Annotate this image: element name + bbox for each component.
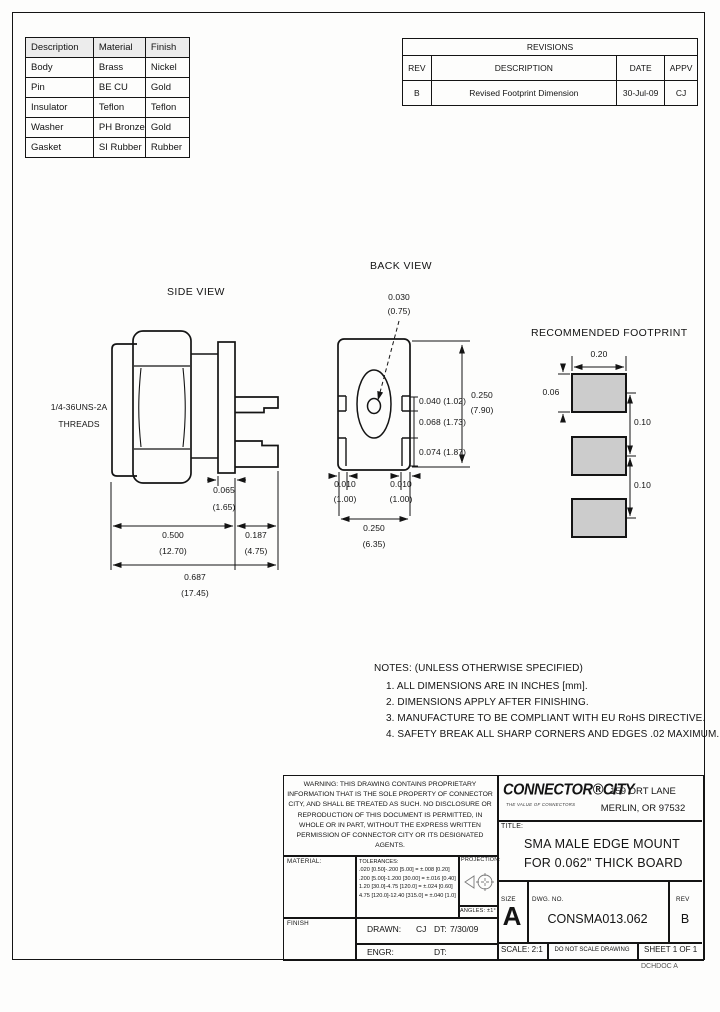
projection-label: PROJECTION: [461, 857, 500, 863]
title-block-line [458, 905, 497, 907]
footprint-label: RECOMMENDED FOOTPRINT [531, 327, 688, 339]
dim-pin-dia-mm: (0.75) [381, 306, 417, 316]
drawn-by-value: CJ [416, 924, 426, 934]
dim-back-width-mm: (6.35) [354, 539, 394, 549]
title-block-line [527, 880, 529, 942]
title-block-line [497, 820, 702, 822]
threads-note-line1: 1/4-36UNS-2A [46, 402, 112, 412]
tolerances-label: TOLERANCES: [359, 858, 456, 866]
dwg-no-value: CONSMA013.062 [527, 912, 668, 926]
company-tagline: THE VALUE OF CONNECTORS [506, 802, 575, 807]
title-block-line [668, 880, 670, 942]
company-address-line1: 159 ORT LANE [589, 783, 697, 800]
notes-heading: NOTES: (UNLESS OTHERWISE SPECIFIED) [374, 663, 583, 674]
proprietary-warning: WARNING: THIS DRAWING CONTAINS PROPRIETA… [287, 780, 493, 851]
dim-pad-height: 0.06 [538, 387, 564, 397]
drawn-date-label: DT: [434, 924, 447, 934]
engr-label: ENGR: [367, 947, 394, 957]
dim-flange-thickness-mm: (1.65) [200, 502, 248, 512]
company-address: 159 ORT LANE MERLIN, OR 97532 [589, 783, 697, 817]
dim-pin-dia-in: 0.030 [381, 292, 417, 302]
title-block-line [283, 917, 497, 919]
note-item-1: 1. ALL DIMENSIONS ARE IN INCHES [mm]. [386, 681, 588, 692]
dwg-no-label: DWG. NO. [532, 896, 564, 903]
dim-body-length-mm: (12.70) [148, 546, 198, 556]
dim-back-bottom: 0.074 (1.87) [419, 447, 466, 457]
corner-doc-code: DCHDOC A [641, 963, 678, 970]
engr-date-label: DT: [434, 947, 447, 957]
drawing-title-line1: SMA MALE EDGE MOUNT [524, 837, 680, 851]
dim-pad-pitch-bottom: 0.10 [634, 480, 651, 490]
footprint-drawing [572, 374, 626, 537]
dim-flange-thickness-in: 0.065 [200, 485, 248, 495]
drawn-label: DRAWN: [367, 924, 401, 934]
dim-overall-length-in: 0.687 [170, 572, 220, 582]
note-item-3: 3. MANUFACTURE TO BE COMPLIANT WITH EU R… [386, 713, 705, 724]
title-block-line [497, 942, 702, 944]
side-view-drawing [112, 331, 278, 483]
do-not-scale-text: DO NOT SCALE DRAWING [547, 947, 637, 953]
material-label: MATERIAL: [287, 858, 322, 865]
tolerances-block: TOLERANCES: .020 [0.50]-.200 [5.00] = ±.… [359, 858, 456, 900]
title-block-line [355, 943, 497, 945]
tolerance-line: .020 [0.50]-.200 [5.00] = ±.008 [0.20] [359, 866, 456, 874]
dim-leg-length-mm: (4.75) [231, 546, 281, 556]
dim-tab-right-in: 0.010 [384, 479, 418, 489]
dim-back-width-in: 0.250 [354, 523, 394, 533]
dim-back-height-mm: (7.90) [464, 405, 500, 415]
sheet-text: SHEET 1 OF 1 [644, 945, 697, 954]
dim-tab-left-in: 0.010 [328, 479, 362, 489]
angles-tolerance: ANGLES: ±1° [460, 908, 496, 914]
dim-leg-length-in: 0.187 [231, 530, 281, 540]
dim-overall-length-mm: (17.45) [170, 588, 220, 598]
back-view-drawing [338, 339, 410, 470]
third-angle-projection-icon [462, 868, 496, 896]
tolerance-line: .200 [5.00]-1.200 [30.00] = ±.016 [0.40] [359, 875, 456, 883]
dim-tab-left-mm: (1.00) [328, 494, 362, 504]
rev-value: B [668, 912, 702, 926]
tolerance-line: 1.20 [30.0]-4.75 [120.0] = ±.024 [0.60] [359, 883, 456, 891]
title-block-line [637, 942, 639, 959]
dim-pad-pitch-top: 0.10 [634, 417, 651, 427]
dim-back-height-in: 0.250 [464, 390, 500, 400]
size-value: A [497, 901, 527, 932]
threads-note-line2: THREADS [46, 419, 112, 429]
note-item-2: 2. DIMENSIONS APPLY AFTER FINISHING. [386, 697, 589, 708]
rev-label: REV [676, 896, 690, 903]
drawing-sheet: Description Material Finish Body Brass N… [0, 0, 720, 1012]
side-view-label: SIDE VIEW [167, 286, 225, 298]
company-address-line2: MERLIN, OR 97532 [589, 800, 697, 817]
tolerance-line: 4.75 [120.0]-12.40 [315.0] = ±.040 [1.0] [359, 892, 456, 900]
title-label: TITLE: [501, 823, 523, 830]
drawn-date-value: 7/30/09 [450, 924, 478, 934]
note-item-4: 4. SAFETY BREAK ALL SHARP CORNERS AND ED… [386, 729, 719, 740]
dim-back-mid: 0.068 (1.73) [419, 417, 466, 427]
finish-label: FINISH [287, 920, 309, 927]
dim-tab-right-mm: (1.00) [384, 494, 418, 504]
dim-pad-width: 0.20 [582, 349, 616, 359]
dim-body-length-in: 0.500 [148, 530, 198, 540]
dim-back-top: 0.040 (1.02) [419, 396, 466, 406]
scale-text: SCALE: 2:1 [501, 945, 543, 954]
drawing-title-line2: FOR 0.062" THICK BOARD [524, 856, 683, 870]
back-view-label: BACK VIEW [370, 260, 432, 272]
